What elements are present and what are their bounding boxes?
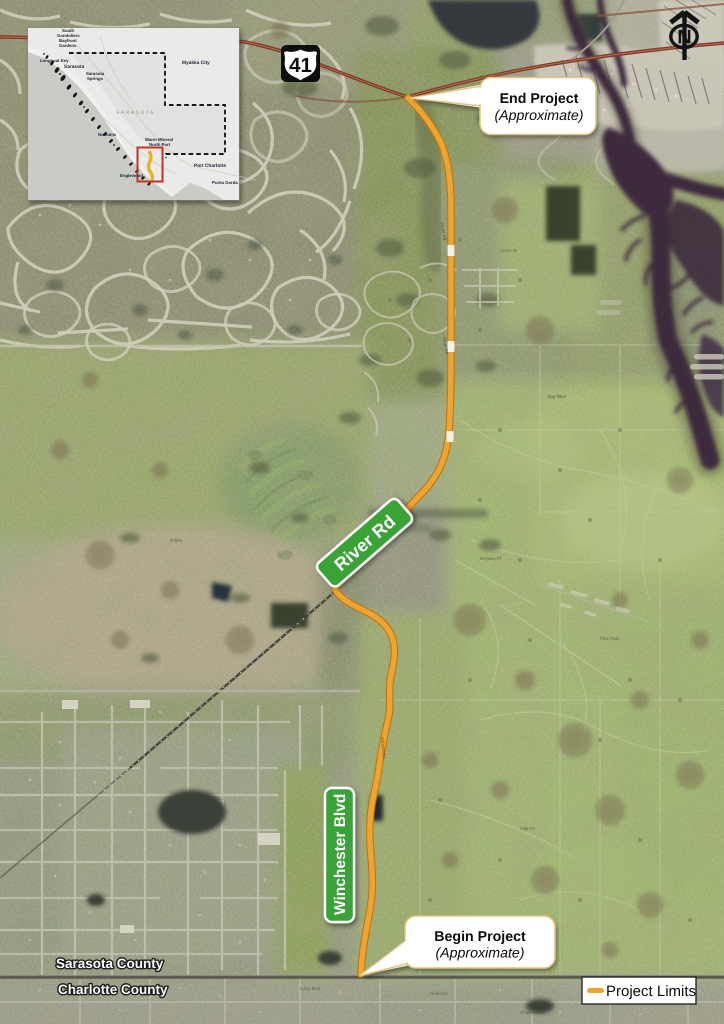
svg-text:Gillot Blvd: Gillot Blvd (300, 986, 321, 991)
svg-text:Port Charlotte: Port Charlotte (194, 163, 226, 169)
svg-text:Serris Dr: Serris Dr (500, 248, 518, 253)
svg-text:Springs: Springs (87, 76, 104, 81)
svg-text:N: N (677, 27, 691, 49)
svg-text:Nokomis: Nokomis (98, 132, 117, 137)
svg-text:Winchester Blvd: Winchester Blvd (332, 794, 349, 915)
svg-text:(Approximate): (Approximate) (435, 946, 524, 962)
svg-text:Myakka City: Myakka City (182, 60, 210, 66)
svg-text:Longboat Key: Longboat Key (40, 58, 69, 63)
svg-text:Sarasota County: Sarasota County (56, 956, 164, 971)
svg-text:Punta Gorda: Punta Gorda (212, 180, 238, 185)
svg-text:SARASOTA: SARASOTA (116, 110, 155, 116)
svg-text:Project Limits: Project Limits (606, 983, 696, 1000)
svg-text:Englewood: Englewood (120, 173, 143, 178)
svg-text:Chamberlain: Chamberlain (520, 1010, 546, 1015)
svg-text:Pine Park: Pine Park (600, 636, 620, 641)
svg-text:Bay Blvd: Bay Blvd (548, 394, 566, 399)
svg-text:Begin Project: Begin Project (434, 929, 526, 945)
svg-text:End Project: End Project (500, 91, 579, 107)
svg-text:41: 41 (289, 54, 312, 77)
svg-text:(Approximate): (Approximate) (494, 108, 583, 124)
svg-text:North Port: North Port (149, 142, 171, 147)
svg-text:Keyway Pl: Keyway Pl (480, 556, 501, 561)
svg-text:Holcomb: Holcomb (430, 991, 448, 996)
svg-text:N Elm: N Elm (170, 538, 183, 543)
svg-text:Sarasota: Sarasota (64, 64, 85, 70)
svg-text:Gardens: Gardens (59, 43, 77, 48)
svg-text:Oak Trl: Oak Trl (520, 826, 535, 831)
svg-text:Charlotte County: Charlotte County (58, 982, 168, 997)
